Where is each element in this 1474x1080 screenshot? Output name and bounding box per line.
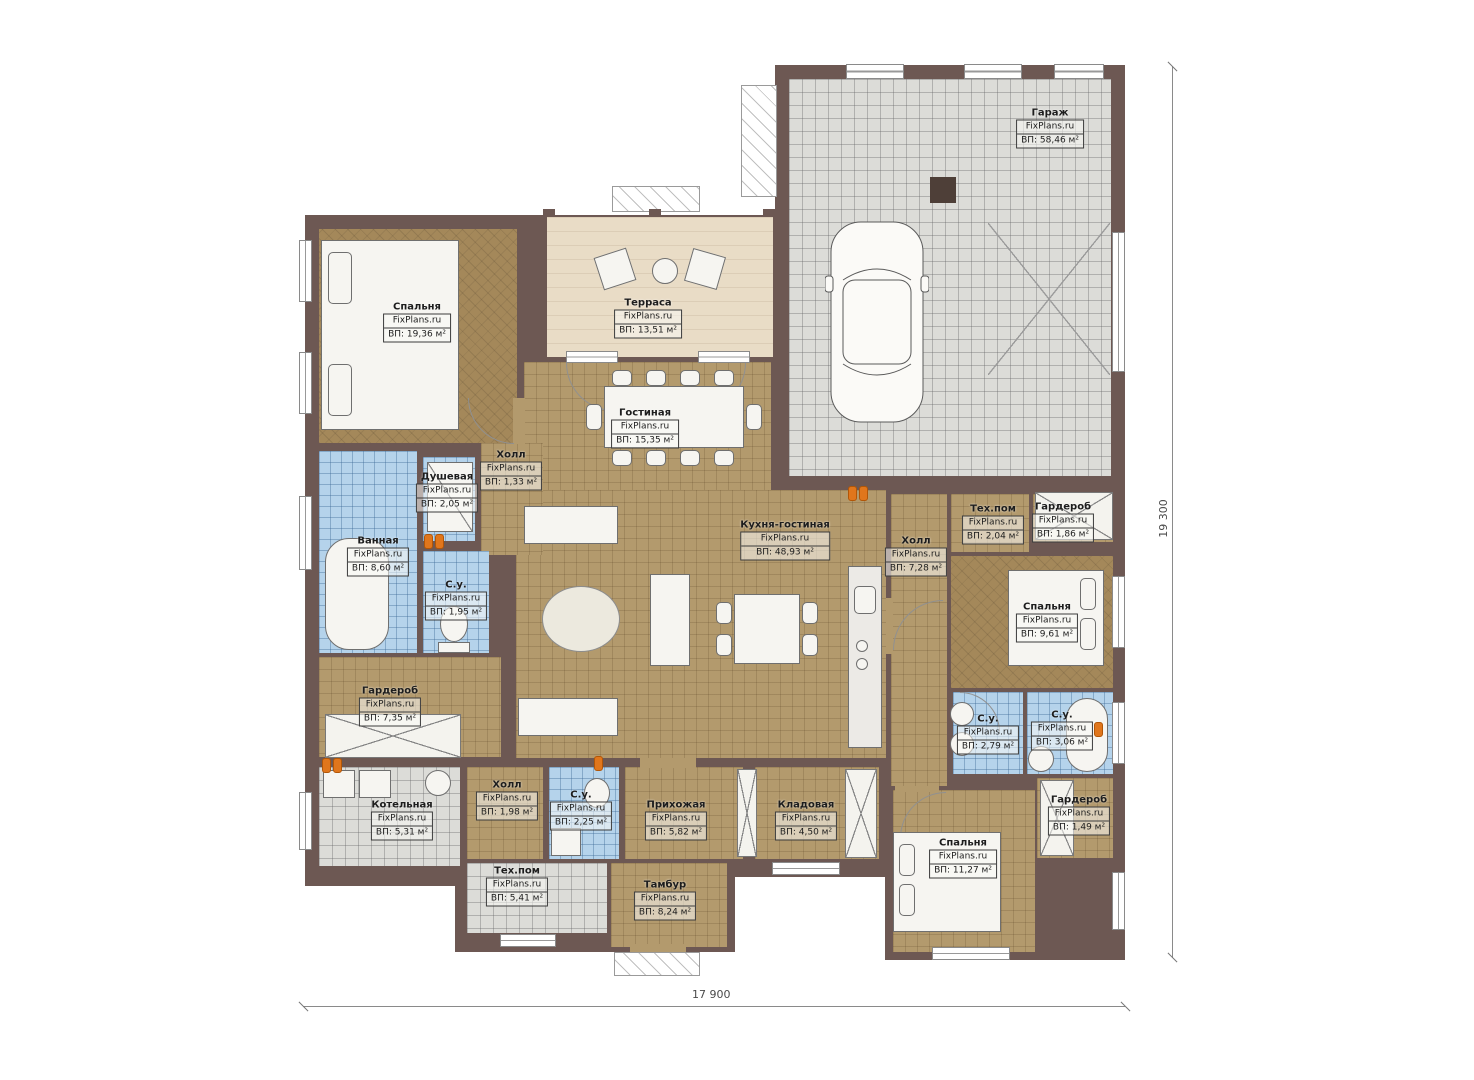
room-label-kitchen: Кухня-гостиная FixPlans.ruВП: 48,93 м² bbox=[740, 520, 830, 561]
radiator bbox=[1094, 722, 1103, 737]
stove-burner bbox=[856, 640, 868, 652]
room-label-garage: Гараж FixPlans.ruВП: 58,46 м² bbox=[1016, 108, 1084, 149]
dimension-value-right: 19 300 bbox=[1157, 499, 1170, 538]
door-gap-entry-kitchen bbox=[640, 758, 696, 768]
dining-chair bbox=[586, 404, 602, 430]
dimension-value-bottom: 17 900 bbox=[692, 988, 731, 1001]
kitchen-chair bbox=[716, 634, 732, 656]
room-label-shower: Душевая FixPlans.ruВП: 2,05 м² bbox=[416, 472, 478, 513]
room-label-tambour: Тамбур FixPlans.ruВП: 8,24 м² bbox=[634, 880, 696, 921]
car-icon bbox=[825, 218, 929, 426]
wardrobe-unit-storage bbox=[845, 769, 877, 858]
dining-chair bbox=[612, 450, 632, 466]
window-boiler-left bbox=[299, 792, 312, 850]
sofa-top bbox=[524, 506, 618, 544]
dining-chair bbox=[612, 370, 632, 386]
dining-chair bbox=[646, 370, 666, 386]
window-garage-top-3 bbox=[1054, 64, 1104, 79]
room-label-wc3: С.у. FixPlans.ruВП: 3,06 м² bbox=[1031, 710, 1093, 751]
door-gap-tambour-exit bbox=[630, 944, 686, 952]
boiler-appliance-2 bbox=[359, 770, 391, 798]
window-terrace-living-1 bbox=[566, 351, 618, 363]
dining-chair bbox=[646, 450, 666, 466]
living-rug bbox=[542, 586, 620, 652]
room-label-entry: Прихожая FixPlans.ruВП: 5,82 м² bbox=[645, 800, 707, 841]
room-label-hall3: Холл FixPlans.ruВП: 1,98 м² bbox=[476, 780, 538, 821]
dimension-line-right bbox=[1172, 66, 1173, 958]
sofa-right bbox=[650, 574, 690, 666]
garage-pillar bbox=[930, 177, 956, 203]
kitchen-chair bbox=[802, 634, 818, 656]
room-label-bedroom3: Спальня FixPlans.ruВП: 11,27 м² bbox=[929, 838, 997, 879]
radiator bbox=[594, 756, 603, 771]
room-label-hall1: Холл FixPlans.ruВП: 1,33 м² bbox=[480, 450, 542, 491]
room-label-storage: Кладовая FixPlans.ruВП: 4,50 м² bbox=[775, 800, 837, 841]
garage-side-ramp bbox=[741, 85, 777, 197]
door-gap-kitchen-hall2 bbox=[886, 598, 893, 654]
stove-burner bbox=[856, 658, 868, 670]
sofa-bottom bbox=[518, 698, 618, 736]
room-label-wc2: С.у. FixPlans.ruВП: 2,79 м² bbox=[957, 714, 1019, 755]
window-storage-bottom bbox=[772, 862, 840, 875]
washing-machine-wc4 bbox=[551, 828, 581, 856]
room-label-bath: Ванная FixPlans.ruВП: 8,60 м² bbox=[347, 536, 409, 577]
garage-reserved-area bbox=[988, 223, 1110, 375]
rear-entry-steps bbox=[614, 952, 700, 976]
pillow bbox=[899, 884, 915, 916]
kitchen-sink bbox=[854, 586, 876, 614]
radiator bbox=[322, 758, 342, 773]
window-garage-right bbox=[1112, 232, 1125, 372]
radiator bbox=[424, 534, 444, 549]
car bbox=[825, 218, 929, 430]
window-wc3-right bbox=[1112, 702, 1125, 764]
room-label-tech1: Тех.пом FixPlans.ruВП: 2,04 м² bbox=[962, 504, 1024, 545]
pillow bbox=[1080, 618, 1096, 650]
window-bedroom3-right bbox=[1112, 872, 1125, 930]
room-label-terrace: Терраса FixPlans.ruВП: 13,51 м² bbox=[614, 298, 682, 339]
window-bedroom3-bottom bbox=[932, 947, 1010, 960]
dining-chair bbox=[680, 450, 700, 466]
kitchen-table bbox=[734, 594, 800, 664]
toilet-tank-wc1 bbox=[438, 642, 470, 653]
room-label-bedroom1: Спальня FixPlans.ruВП: 19,36 м² bbox=[383, 302, 451, 343]
room-label-wc4: С.у. FixPlans.ruВП: 2,25 м² bbox=[550, 790, 612, 831]
room-label-living: Гостиная FixPlans.ruВП: 15,35 м² bbox=[611, 408, 679, 449]
dimension-line-bottom bbox=[303, 1006, 1125, 1007]
dining-chair bbox=[714, 370, 734, 386]
window-bedroom2-right bbox=[1112, 576, 1125, 648]
room-label-bedroom2: Спальня FixPlans.ruВП: 9,61 м² bbox=[1016, 602, 1078, 643]
pillow bbox=[328, 252, 352, 304]
room-label-hall2: Холл FixPlans.ruВП: 7,28 м² bbox=[885, 536, 947, 577]
window-garage-top-1 bbox=[846, 64, 904, 79]
window-bedroom1-left-1 bbox=[299, 240, 312, 302]
boiler-heater bbox=[425, 770, 451, 796]
window-bath-left bbox=[299, 496, 312, 570]
dining-chair bbox=[714, 450, 734, 466]
boiler-appliance-1 bbox=[323, 770, 355, 798]
kitchen-chair bbox=[802, 602, 818, 624]
kitchen-chair bbox=[716, 602, 732, 624]
room-label-wardrobe2: Гардероб FixPlans.ruВП: 7,35 м² bbox=[359, 686, 421, 727]
room-label-wc1: С.у. FixPlans.ruВП: 1,95 м² bbox=[425, 580, 487, 621]
room-label-tech2: Тех.пом FixPlans.ruВП: 5,41 м² bbox=[486, 866, 548, 907]
pillow bbox=[899, 844, 915, 876]
window-tech2-bottom bbox=[500, 934, 556, 947]
door-gap-hall2-bedroom3 bbox=[895, 786, 939, 792]
window-garage-top-2 bbox=[964, 64, 1022, 79]
pillow bbox=[328, 364, 352, 416]
room-label-wardrobe1: Гардероб FixPlans.ruВП: 1,86 м² bbox=[1032, 502, 1094, 543]
room-label-wardrobe3: Гардероб FixPlans.ruВП: 1,49 м² bbox=[1048, 795, 1110, 836]
window-bedroom1-left-2 bbox=[299, 352, 312, 414]
floor-plan-canvas: Спальня FixPlans.ruВП: 19,36 м² Терраса … bbox=[0, 0, 1474, 1080]
wardrobe-unit-entry bbox=[737, 769, 757, 857]
dining-chair bbox=[680, 370, 700, 386]
terrace-table bbox=[652, 258, 678, 284]
pillow bbox=[1080, 578, 1096, 610]
wall-boiler-bottom bbox=[305, 866, 470, 886]
dining-chair bbox=[746, 404, 762, 430]
radiator bbox=[848, 486, 868, 501]
room-label-boiler: Котельная FixPlans.ruВП: 5,31 м² bbox=[371, 800, 433, 841]
window-terrace-living-2 bbox=[698, 351, 750, 363]
door-gap-bedroom1 bbox=[513, 398, 525, 444]
